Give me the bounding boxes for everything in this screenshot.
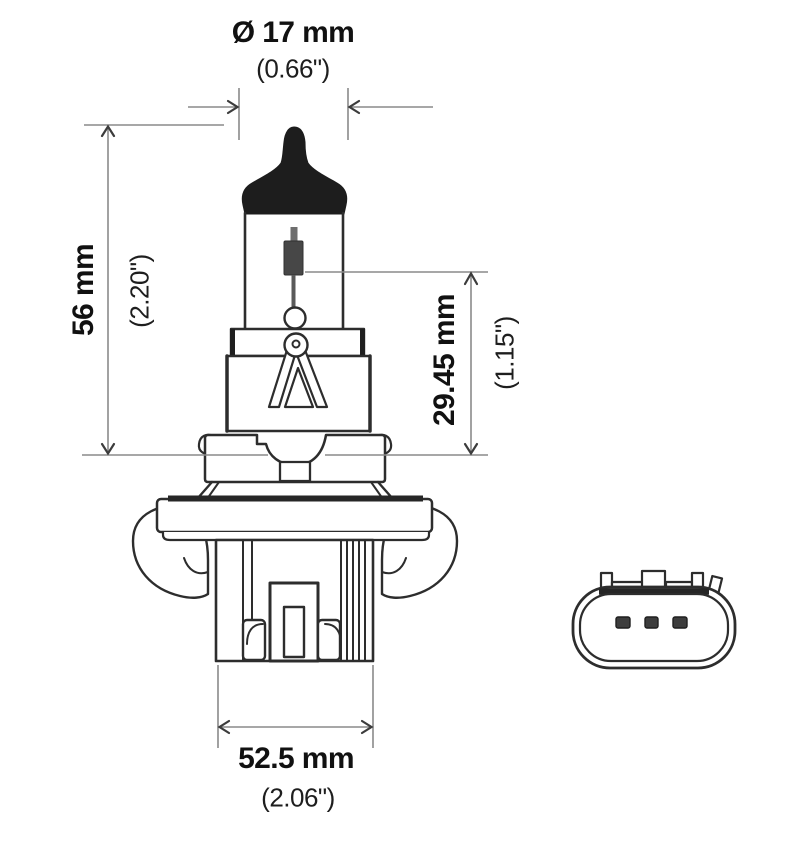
bulb-side-view — [133, 127, 457, 661]
dim-filament-imperial: (1.15") — [489, 316, 519, 390]
base-collar — [199, 435, 391, 482]
wire-loop — [285, 308, 306, 329]
filament-assembly — [284, 227, 306, 329]
mounting-flange — [157, 496, 432, 541]
flange-gasket — [168, 496, 423, 502]
plug-pin-3 — [673, 617, 687, 628]
filament-stem — [291, 227, 298, 242]
dim-width-imperial: (2.06") — [261, 782, 335, 812]
bulb-drawing-svg: Ø 17 mm (0.66") 56 mm (2.20") 29.45 mm (… — [0, 0, 800, 843]
bulb-tip — [242, 127, 346, 214]
dim-diameter-imperial: (0.66") — [256, 53, 330, 83]
collar-key — [280, 462, 310, 481]
latch-tab-left — [243, 620, 265, 660]
plug-pin-1 — [616, 617, 630, 628]
dim-diameter: Ø 17 mm (0.66") — [188, 16, 433, 140]
dim-width-metric: 52.5 mm — [238, 742, 354, 775]
plug-pin-2 — [645, 617, 658, 628]
dim-width: 52.5 mm (2.06") — [218, 665, 373, 812]
dim-height: 56 mm (2.20") — [67, 125, 224, 454]
connector-body — [216, 540, 373, 661]
terminal-slot — [284, 607, 304, 657]
dim-filament-metric: 29.45 mm — [428, 294, 461, 426]
plug-face-view — [573, 571, 735, 668]
technical-diagram: Ø 17 mm (0.66") 56 mm (2.20") 29.45 mm (… — [0, 0, 800, 843]
filament — [284, 241, 303, 275]
dim-height-metric: 56 mm — [67, 244, 100, 336]
support-pivot — [293, 341, 300, 348]
latch-tab-right — [318, 620, 341, 660]
dim-diameter-metric: Ø 17 mm — [232, 16, 355, 49]
dim-height-imperial: (2.20") — [124, 254, 154, 328]
